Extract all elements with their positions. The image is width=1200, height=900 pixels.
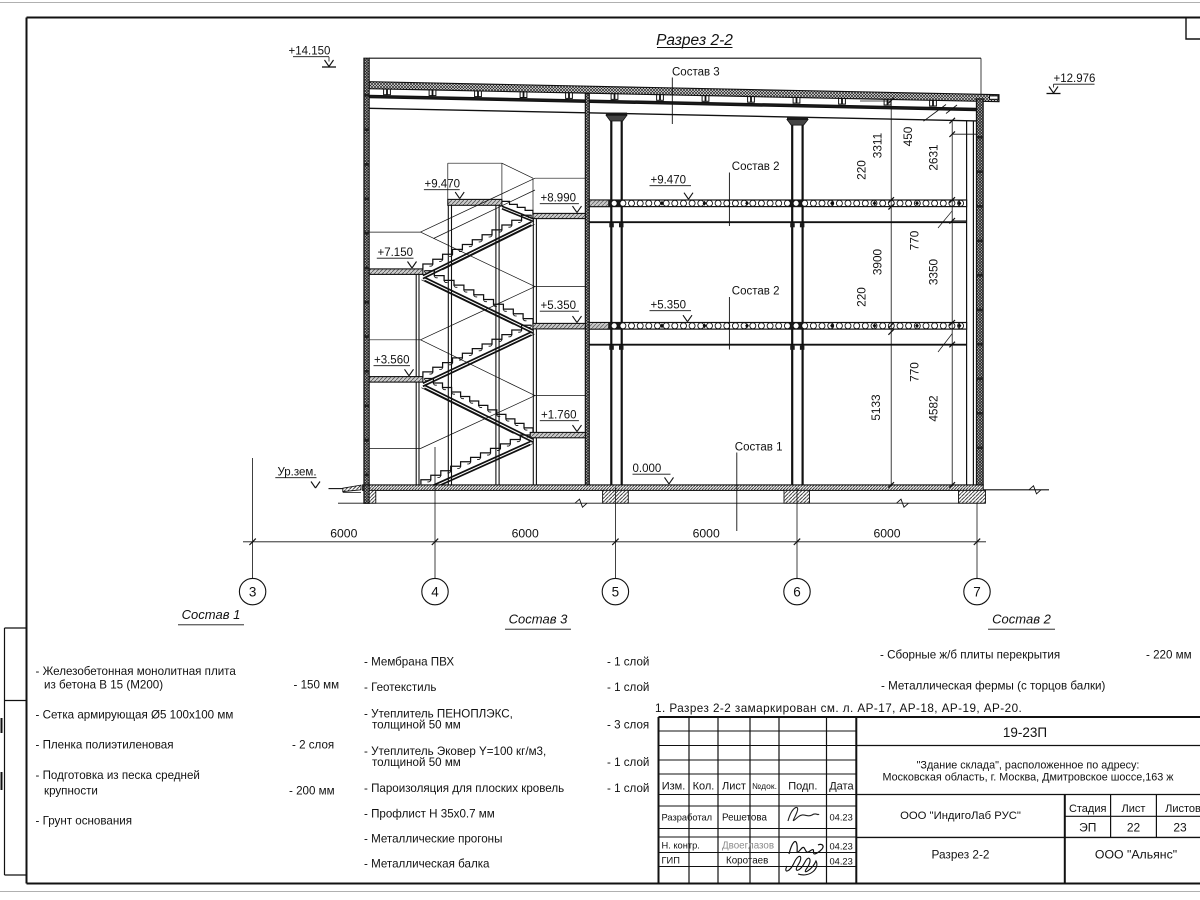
svg-text:+5.350: +5.350 bbox=[541, 300, 577, 312]
svg-text:- Металлическая фермы (с торцо: - Металлическая фермы (с торцов балки) bbox=[881, 680, 1106, 693]
svg-text:толщиной 50 мм: толщиной 50 мм bbox=[372, 719, 461, 732]
svg-text:Состав 2: Состав 2 bbox=[992, 612, 1051, 627]
svg-text:+1.760: +1.760 bbox=[541, 410, 577, 422]
svg-text:450: 450 bbox=[901, 126, 915, 146]
svg-text:Кол.: Кол. bbox=[693, 781, 715, 793]
svg-text:- Подготовка из песка средней: - Подготовка из песка средней bbox=[36, 769, 200, 782]
svg-text:3: 3 bbox=[249, 584, 257, 599]
svg-text:Листов: Листов bbox=[1165, 803, 1200, 815]
svg-text:770: 770 bbox=[907, 230, 921, 250]
svg-text:- 1 слой: - 1 слой bbox=[607, 656, 649, 669]
svg-text:ООО "Альянс": ООО "Альянс" bbox=[1095, 848, 1177, 862]
svg-text:+9.470: +9.470 bbox=[425, 179, 461, 191]
svg-text:04.23: 04.23 bbox=[830, 813, 853, 823]
svg-text:Двоеглазов: Двоеглазов bbox=[722, 841, 774, 852]
svg-text:ГИП: ГИП bbox=[662, 856, 680, 866]
svg-text:- Профлист Н 35х0.7 мм: - Профлист Н 35х0.7 мм bbox=[364, 808, 495, 821]
svg-text:ЭП: ЭП bbox=[1079, 821, 1096, 835]
svg-text:крупности: крупности bbox=[44, 785, 98, 798]
svg-text:- Металлическая балка: - Металлическая балка bbox=[364, 858, 490, 871]
svg-text:ООО "ИндигоЛаб РУС": ООО "ИндигоЛаб РУС" bbox=[900, 810, 1021, 822]
svg-text:- Металлические прогоны: - Металлические прогоны bbox=[364, 833, 502, 846]
svg-text:- 150 мм: - 150 мм bbox=[294, 679, 340, 692]
svg-text:- Мембрана ПВХ: - Мембрана ПВХ bbox=[364, 656, 454, 669]
svg-text:- Геотекстиль: - Геотекстиль bbox=[364, 681, 436, 694]
svg-text:Н. контр.: Н. контр. bbox=[662, 841, 700, 851]
svg-text:770: 770 bbox=[907, 362, 921, 382]
svg-text:6000: 6000 bbox=[512, 527, 539, 541]
svg-text:- Сборные ж/б плиты перекрытия: - Сборные ж/б плиты перекрытия bbox=[880, 649, 1060, 662]
svg-text:- 1 слой: - 1 слой bbox=[607, 681, 649, 694]
svg-text:Дата: Дата bbox=[829, 781, 854, 793]
svg-text:220: 220 bbox=[854, 287, 868, 307]
svg-text:04.23: 04.23 bbox=[830, 857, 853, 867]
svg-text:Разрез 2-2: Разрез 2-2 bbox=[656, 32, 733, 49]
svg-text:+12.976: +12.976 bbox=[1054, 73, 1096, 85]
svg-text:4: 4 bbox=[431, 584, 439, 599]
svg-text:22: 22 bbox=[1127, 821, 1141, 835]
svg-text:3900: 3900 bbox=[870, 248, 884, 275]
svg-text:+7.150: +7.150 bbox=[378, 247, 414, 259]
svg-text:3311: 3311 bbox=[870, 133, 884, 158]
svg-text:Разрез 2-2: Разрез 2-2 bbox=[932, 848, 990, 862]
svg-text:+14.150: +14.150 bbox=[289, 46, 331, 58]
svg-text:6000: 6000 bbox=[873, 527, 900, 541]
svg-text:Состав 1: Состав 1 bbox=[182, 607, 241, 622]
svg-text:- Грунт основания: - Грунт основания bbox=[36, 815, 133, 828]
svg-text:Состав 3: Состав 3 bbox=[509, 612, 568, 627]
svg-text:2631: 2631 bbox=[927, 144, 941, 170]
svg-text:- Железобетонная монолитная п: - Железобетонная монолитная плита bbox=[36, 665, 237, 678]
svg-text:7: 7 bbox=[973, 584, 981, 599]
svg-text:Лист: Лист bbox=[1122, 803, 1146, 815]
svg-text:- Пленка полиэтиленовая: - Пленка полиэтиленовая bbox=[36, 739, 174, 752]
svg-text:04.23: 04.23 bbox=[830, 842, 853, 852]
svg-text:+8.990: +8.990 bbox=[541, 193, 577, 205]
svg-text:№док.: №док. bbox=[752, 781, 777, 791]
svg-text:19-23П: 19-23П bbox=[1003, 725, 1047, 740]
svg-text:Подп.: Подп. bbox=[788, 781, 817, 793]
svg-text:220: 220 bbox=[854, 160, 868, 180]
svg-text:+5.350: +5.350 bbox=[651, 300, 687, 312]
svg-text:- 1 слой: - 1 слой bbox=[607, 756, 649, 769]
svg-text:- 3 слоя: - 3 слоя bbox=[607, 719, 649, 732]
svg-text:- 200 мм: - 200 мм bbox=[289, 785, 335, 798]
svg-text:6000: 6000 bbox=[693, 527, 720, 541]
svg-text:4582: 4582 bbox=[927, 395, 941, 421]
svg-text:Разработал: Разработал bbox=[662, 813, 713, 823]
svg-text:"Здание склада", расположенное: "Здание склада", расположенное по адресу… bbox=[917, 760, 1140, 772]
svg-text:6000: 6000 bbox=[330, 527, 357, 541]
svg-text:5133: 5133 bbox=[869, 394, 883, 421]
svg-text:1. Разрез 2-2 замаркирован см.: 1. Разрез 2-2 замаркирован см. л. АР-17,… bbox=[655, 702, 1022, 715]
svg-text:Ур.зем.: Ур.зем. bbox=[278, 467, 317, 479]
svg-text:Состав 3: Состав 3 bbox=[672, 67, 720, 79]
svg-text:Лист: Лист bbox=[722, 781, 746, 793]
svg-text:толщиной 50 мм: толщиной 50 мм bbox=[372, 756, 461, 769]
svg-text:+9.470: +9.470 bbox=[651, 175, 687, 187]
svg-text:3350: 3350 bbox=[927, 258, 941, 285]
svg-text:Коротаев: Коротаев bbox=[726, 856, 768, 867]
svg-text:+3.560: +3.560 bbox=[374, 355, 410, 367]
svg-text:- Пароизоляция для плоских кро: - Пароизоляция для плоских кровель bbox=[364, 782, 564, 795]
svg-text:- 1 слой: - 1 слой bbox=[607, 782, 649, 795]
svg-text:5: 5 bbox=[612, 584, 620, 599]
svg-text:Изм.: Изм. bbox=[662, 781, 686, 793]
svg-text:0.000: 0.000 bbox=[633, 463, 662, 475]
svg-text:Состав 1: Состав 1 bbox=[735, 442, 783, 454]
svg-text:- 220 мм: - 220 мм bbox=[1146, 649, 1192, 662]
svg-text:23: 23 bbox=[1173, 821, 1187, 835]
svg-text:Московская область, г. Москва,: Московская область, г. Москва, Дмитровск… bbox=[883, 772, 1175, 784]
svg-text:Состав 2: Состав 2 bbox=[732, 286, 780, 298]
svg-text:Стадия: Стадия bbox=[1069, 803, 1107, 815]
svg-text:- Сетка армирующая Ø5 100х100: - Сетка армирующая Ø5 100х100 мм bbox=[36, 709, 234, 722]
svg-text:6: 6 bbox=[793, 584, 801, 599]
svg-text:- 2 слоя: - 2 слоя bbox=[292, 739, 334, 752]
svg-text:из бетона В 15 (М200): из бетона В 15 (М200) bbox=[44, 679, 163, 692]
svg-text:Решетова: Решетова bbox=[722, 813, 767, 824]
svg-text:Состав 2: Состав 2 bbox=[732, 161, 780, 173]
